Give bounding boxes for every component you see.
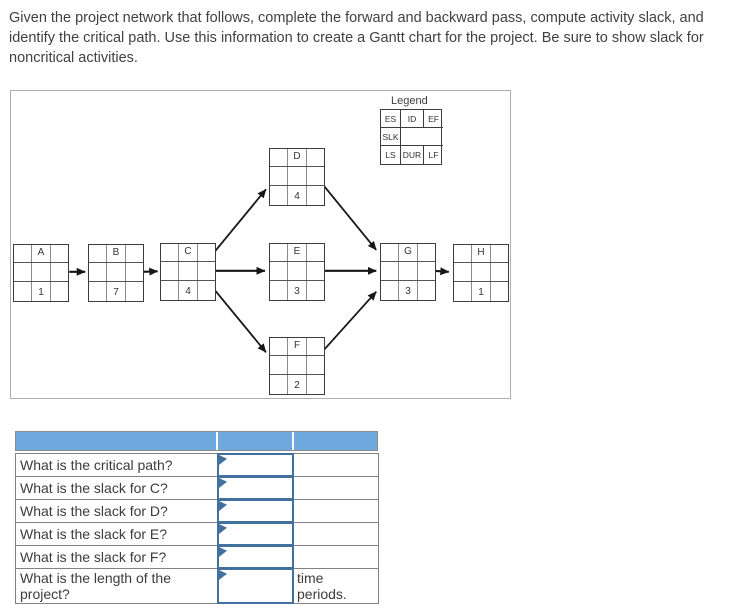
- answer-input-slack-d[interactable]: [217, 499, 294, 523]
- node-grid-line: [270, 261, 324, 262]
- node-grid-line: [454, 262, 508, 263]
- node-grid-line: [14, 281, 68, 282]
- node-duration-label: 2: [288, 380, 306, 391]
- node-duration-label: 3: [399, 286, 417, 297]
- edge-f-g: [324, 292, 377, 351]
- node-grid-line: [197, 244, 198, 300]
- node-grid-line: [14, 262, 68, 263]
- legend-cell-blank: [401, 128, 443, 146]
- activity-node-c: C 4: [160, 243, 216, 301]
- node-id-label: C: [179, 246, 197, 257]
- activity-node-e: E 3: [269, 243, 325, 301]
- header-cell-answer: [218, 432, 292, 450]
- answer-note: [294, 500, 379, 523]
- node-grid-line: [50, 245, 51, 301]
- edge-c-d: [215, 189, 266, 251]
- edge-d-g: [324, 185, 377, 250]
- node-grid-line: [161, 261, 215, 262]
- legend-table: ES ID EF SLK LS DUR LF: [380, 109, 442, 165]
- question-row: What is the slack for E?: [16, 523, 379, 546]
- question-label: What is the slack for D?: [16, 500, 218, 523]
- legend-cell-ls: LS: [381, 146, 401, 164]
- answer-flag-icon: [219, 478, 227, 488]
- answer-note: [294, 454, 379, 477]
- node-duration-label: 4: [179, 286, 197, 297]
- activity-node-f: F 2: [269, 337, 325, 395]
- answer-cell: [218, 500, 294, 523]
- activity-node-g: G 3: [380, 243, 436, 301]
- question-row: What is the length of the project? time …: [16, 569, 379, 604]
- answer-input-slack-c[interactable]: [217, 476, 294, 500]
- header-cell-question: [16, 432, 216, 450]
- legend-cell-lf: LF: [424, 146, 443, 164]
- node-id-label: D: [288, 151, 306, 162]
- question-label: What is the length of the project?: [16, 569, 218, 604]
- activity-node-a: A 1: [13, 244, 69, 302]
- edge-c-f: [215, 291, 266, 353]
- answer-input-critical-path[interactable]: [217, 453, 294, 477]
- answer-input-slack-f[interactable]: [217, 545, 294, 569]
- node-id-label: G: [399, 246, 417, 257]
- node-id-label: F: [288, 340, 306, 351]
- node-id-label: A: [32, 247, 50, 258]
- activity-node-b: B 7: [88, 244, 144, 302]
- questions-table-header: [15, 431, 378, 451]
- node-grid-line: [125, 245, 126, 301]
- node-duration-label: 1: [32, 287, 50, 298]
- legend-cell-id: ID: [401, 110, 424, 128]
- answer-cell: [218, 477, 294, 500]
- question-row: What is the critical path?: [16, 454, 379, 477]
- node-id-label: H: [472, 247, 490, 258]
- legend-title: Legend: [391, 95, 442, 107]
- question-label: What is the slack for E?: [16, 523, 218, 546]
- node-grid-line: [381, 261, 435, 262]
- answer-flag-icon: [219, 501, 227, 511]
- question-label: What is the critical path?: [16, 454, 218, 477]
- node-duration-label: 7: [107, 287, 125, 298]
- node-grid-line: [270, 355, 324, 356]
- node-grid-line: [270, 280, 324, 281]
- node-grid-line: [381, 280, 435, 281]
- question-label: What is the slack for C?: [16, 477, 218, 500]
- answer-flag-icon: [219, 570, 227, 580]
- node-grid-line: [270, 166, 324, 167]
- question-row: What is the slack for D?: [16, 500, 379, 523]
- question-row: What is the slack for C?: [16, 477, 379, 500]
- answer-flag-icon: [219, 547, 227, 557]
- answer-cell: [218, 569, 294, 604]
- node-grid-line: [270, 374, 324, 375]
- question-label: What is the slack for F?: [16, 546, 218, 569]
- node-grid-line: [89, 281, 143, 282]
- answer-flag-icon: [219, 455, 227, 465]
- activity-node-d: D 4: [269, 148, 325, 206]
- legend-cell-slk: SLK: [381, 128, 401, 146]
- instructions-text: Given the project network that follows, …: [9, 8, 727, 68]
- page: Given the project network that follows, …: [0, 0, 733, 605]
- answer-note: [294, 546, 379, 569]
- answer-cell: [218, 523, 294, 546]
- question-row: What is the slack for F?: [16, 546, 379, 569]
- node-duration-label: 4: [288, 191, 306, 202]
- node-id-label: E: [288, 246, 306, 257]
- activity-node-h: H 1: [453, 244, 509, 302]
- node-grid-line: [161, 280, 215, 281]
- node-grid-line: [306, 149, 307, 205]
- legend: Legend ES ID EF SLK LS DUR LF: [380, 95, 442, 165]
- answer-cell: [218, 546, 294, 569]
- node-id-label: B: [107, 247, 125, 258]
- node-grid-line: [490, 245, 491, 301]
- answer-note: [294, 523, 379, 546]
- edge-g-h: [434, 271, 449, 272]
- answer-input-project-length[interactable]: [217, 568, 294, 604]
- answer-cell: [218, 454, 294, 477]
- node-grid-line: [270, 185, 324, 186]
- node-duration-label: 1: [472, 287, 490, 298]
- node-grid-line: [417, 244, 418, 300]
- header-cell-units: [294, 432, 377, 450]
- answer-flag-icon: [219, 524, 227, 534]
- answer-input-slack-e[interactable]: [217, 522, 294, 546]
- legend-cell-es: ES: [381, 110, 401, 128]
- node-grid-line: [89, 262, 143, 263]
- questions-table: What is the critical path? What is the s…: [15, 453, 379, 604]
- node-grid-line: [306, 244, 307, 300]
- legend-cell-dur: DUR: [401, 146, 424, 164]
- node-duration-label: 3: [288, 286, 306, 297]
- node-grid-line: [306, 338, 307, 394]
- legend-cell-ef: EF: [424, 110, 443, 128]
- answer-note: time periods.: [294, 569, 379, 604]
- answer-note: [294, 477, 379, 500]
- node-grid-line: [454, 281, 508, 282]
- project-network-diagram: A 1 B 7 C 4 D 4 E 3: [10, 90, 511, 399]
- questions-section: What is the critical path? What is the s…: [15, 431, 378, 604]
